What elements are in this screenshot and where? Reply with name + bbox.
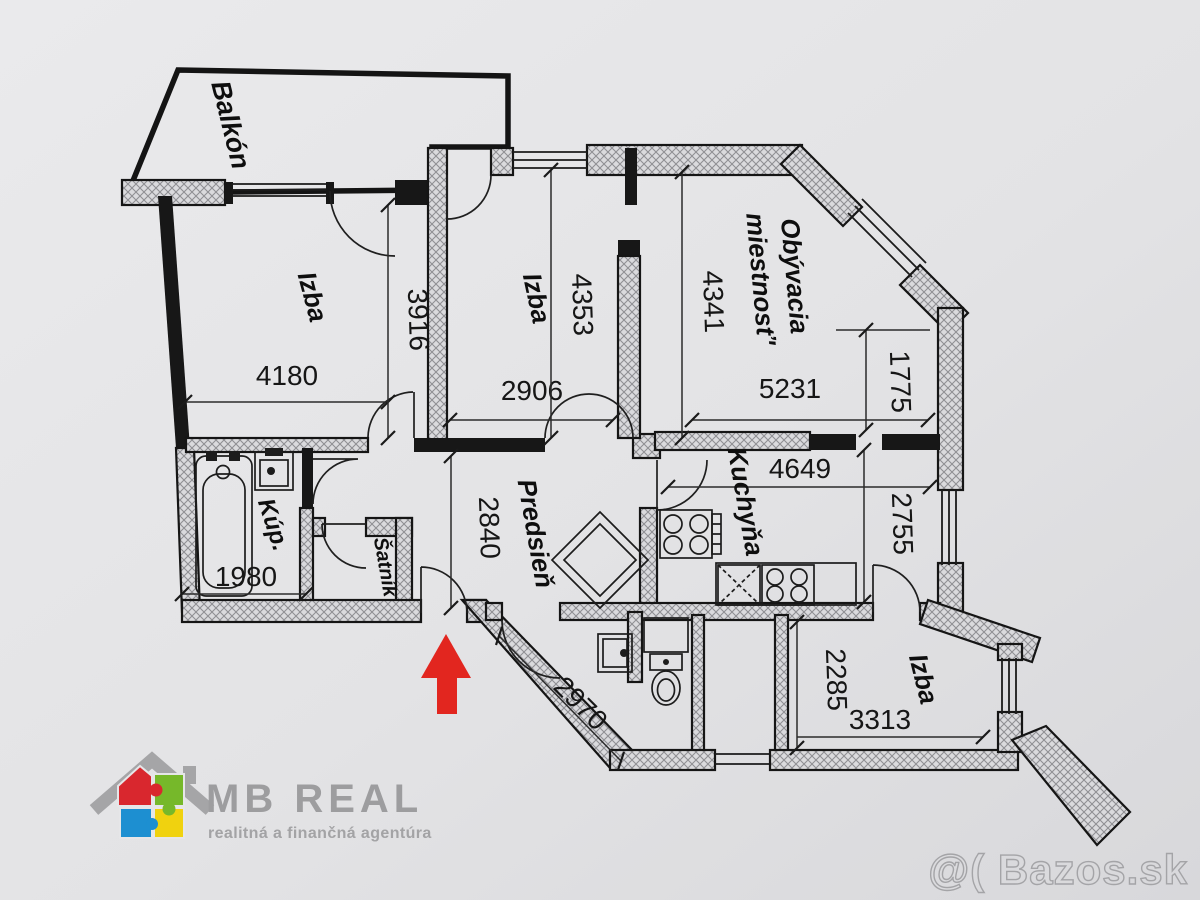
logo-name: MB REAL [206,777,423,821]
dim-bath-width: 1980 [215,561,277,592]
wall [640,508,657,608]
wall [775,615,788,760]
dim-izba1-width: 4180 [256,360,318,391]
wall [300,508,313,612]
wall [396,518,412,612]
entrance-arrow-shaft [437,678,457,714]
bazos-watermark: @( Bazos.sk [928,846,1188,893]
wall [225,182,233,204]
dim-hall-height: 2840 [473,496,506,559]
wall [587,145,802,175]
logo-puzzle-house-icon [118,766,184,838]
dim-izba3-width: 3313 [849,704,911,735]
wall [810,434,856,450]
dim-living-width: 5231 [759,373,821,404]
wall [625,148,637,205]
dim-izba2-width: 2906 [501,375,563,406]
wall [938,308,963,490]
wall [770,750,1018,770]
dim-izba3-height: 2285 [820,648,853,711]
puzzle-nub [150,784,163,797]
scanned-floorplan-photo: 4180 3916 2906 4353 4341 5231 1775 4649 … [0,0,1200,900]
puzzle-nub [146,818,158,830]
wall [486,603,502,620]
wall [610,750,715,770]
dim-living-corner: 1775 [884,350,917,413]
puzzle-nub [163,803,176,816]
wall [447,438,545,452]
logo-tagline: realitná a finančná agentúra [208,825,432,842]
dim-kitchen-height: 2755 [886,492,919,555]
wall [302,448,313,508]
dim-izba2-height: 4353 [566,273,599,336]
wall [618,240,640,256]
dim-kitchen-width: 4649 [769,453,831,484]
wall [182,600,421,622]
wall [692,615,704,760]
dim-living-height: 4341 [697,270,730,333]
wall [491,148,513,175]
floor-plan-canvas: 4180 3916 2906 4353 4341 5231 1775 4649 … [0,0,1200,900]
wall [395,180,427,205]
wall [414,438,447,452]
wall [998,644,1022,660]
wall [122,180,225,205]
dim-izba1-height: 3916 [402,288,435,351]
wall [618,256,640,438]
wall [882,434,940,450]
